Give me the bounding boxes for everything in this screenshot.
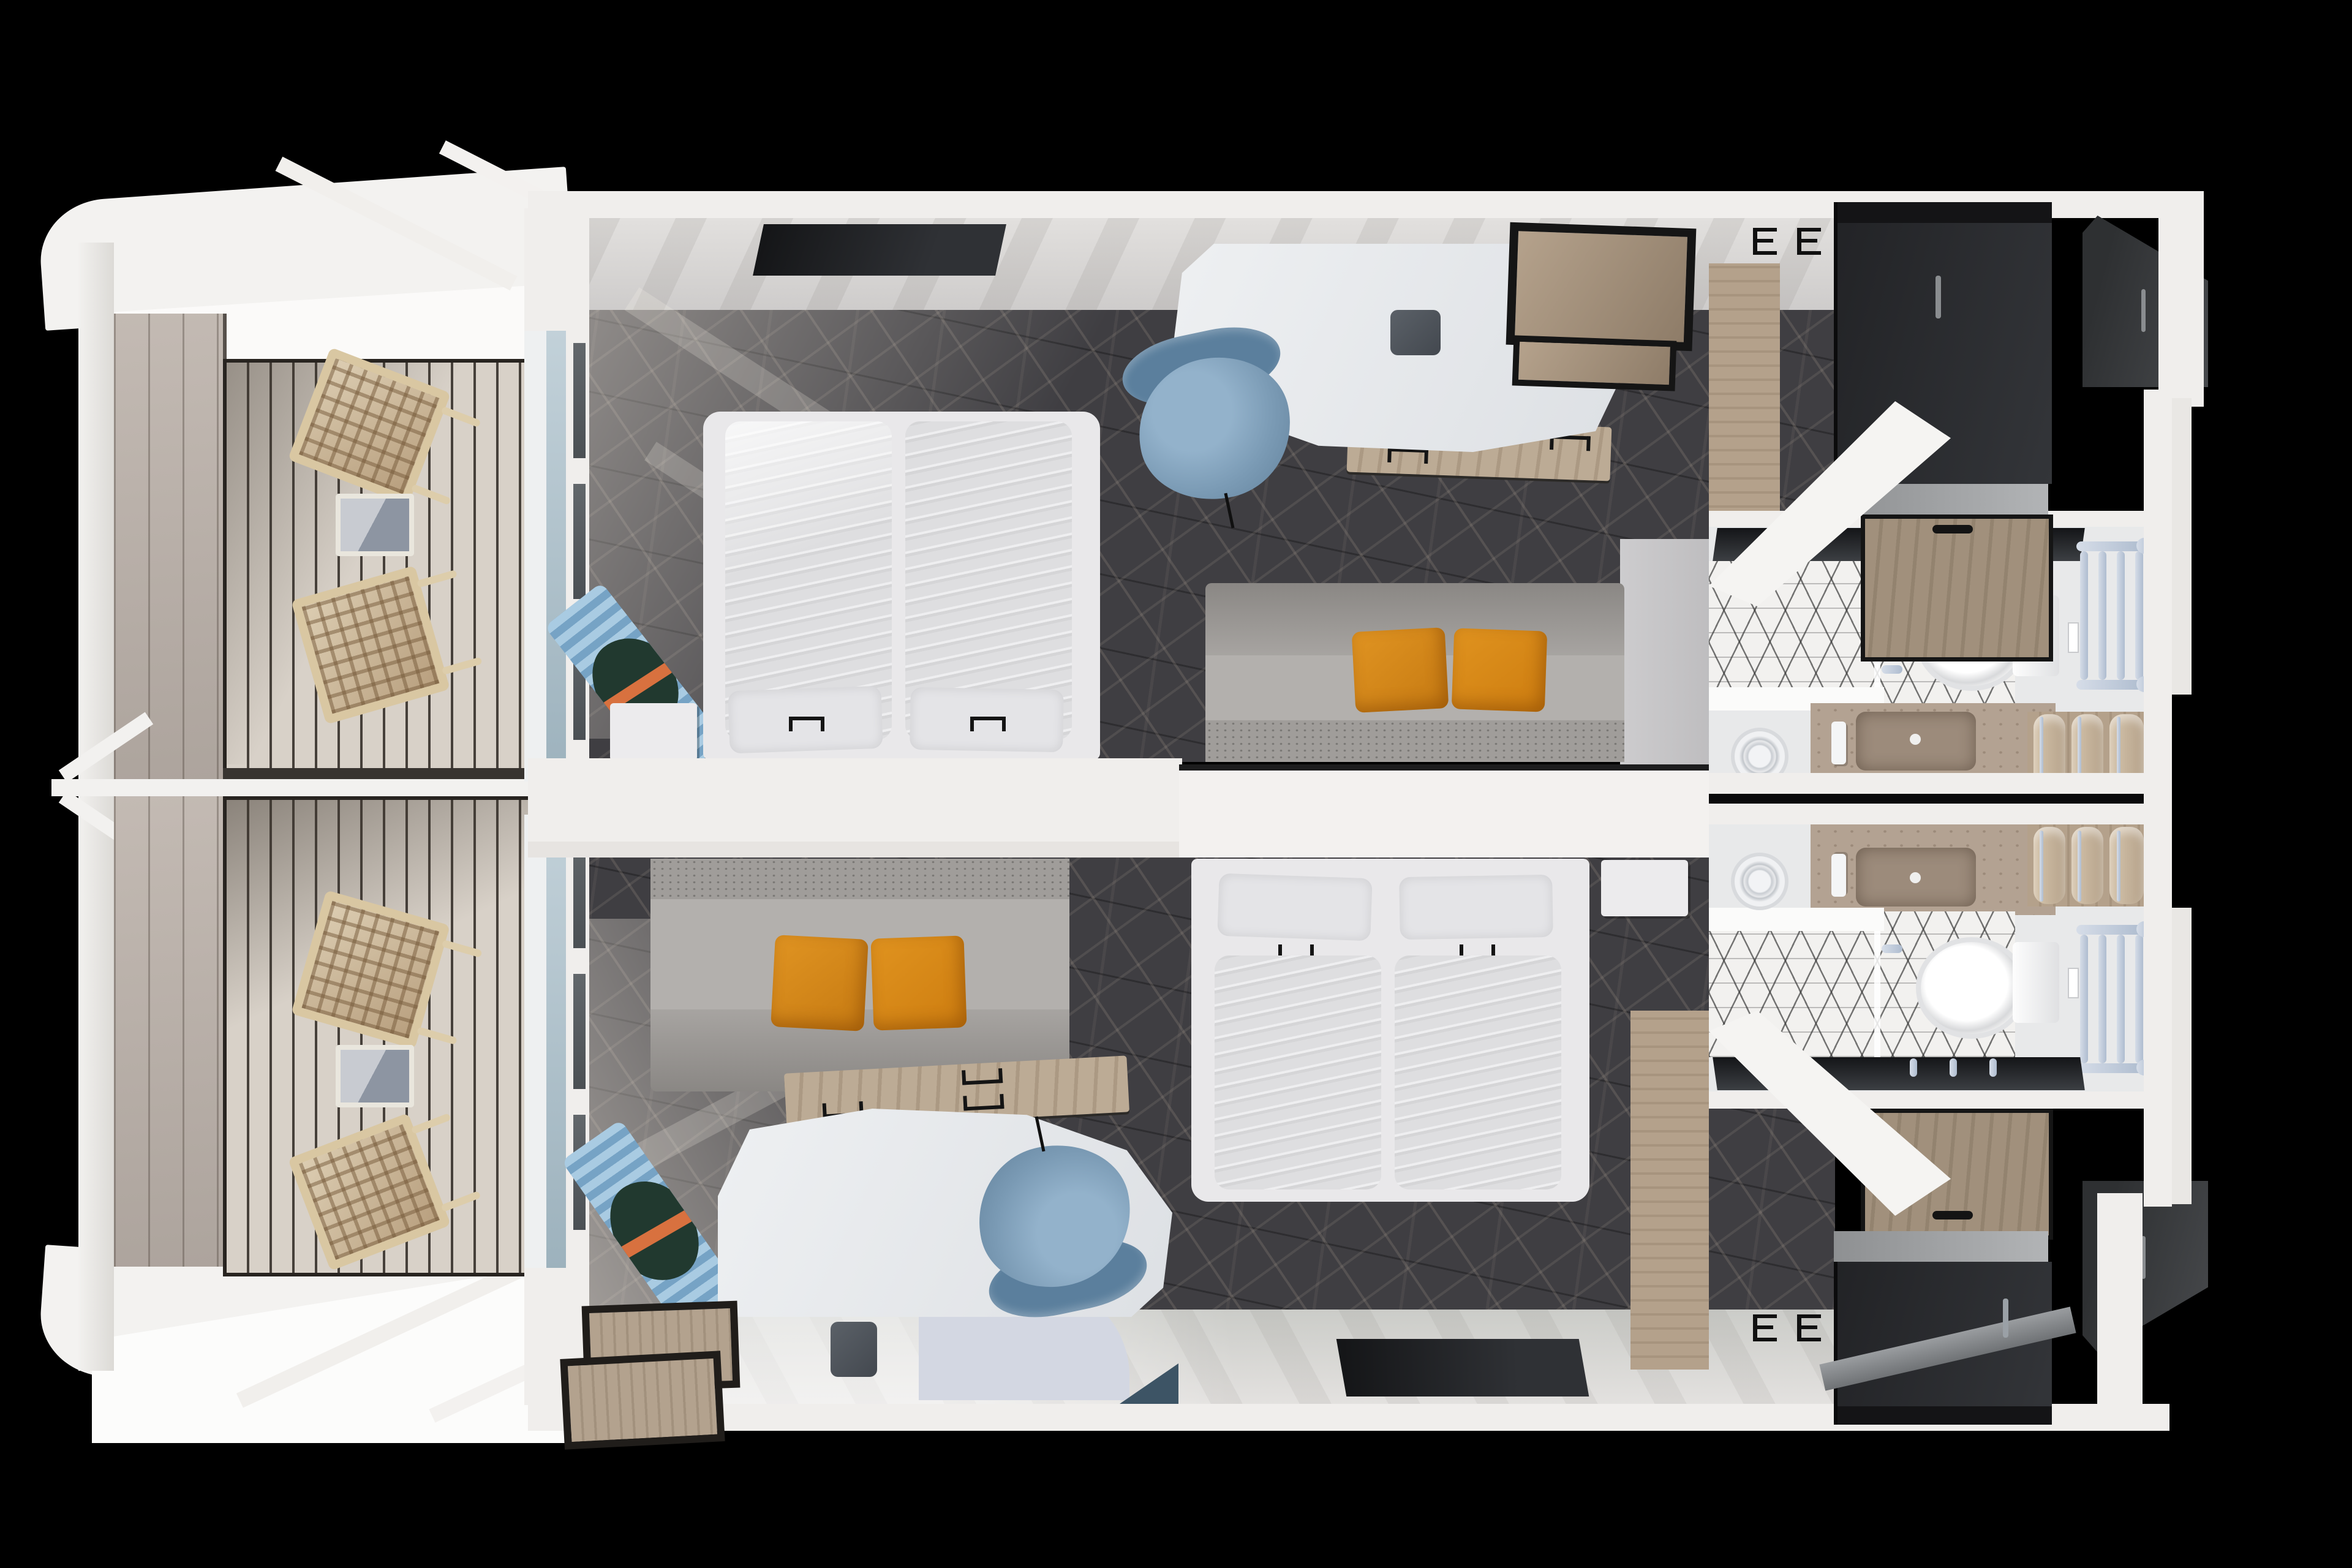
balcony-bulwark-bottom [114,796,227,1267]
bathroom-divider-wall [1709,773,2147,794]
sofa-skirt [1205,720,1624,762]
floor-plan-render [0,0,2352,1568]
phone-on-desk [1390,310,1441,355]
wall-hook-icon [1753,228,1784,255]
bed-top-cabin [703,412,1100,759]
wardrobe-top-edge [1838,202,2052,223]
towel-bar [2117,831,2120,902]
side-wall-gray-top [1620,539,1711,764]
right-corner-wall-top [2158,191,2204,407]
wall-hook-icon [1797,1314,1828,1341]
sofa-top-cabin [1205,583,1624,762]
mixer-handle [1950,1058,1957,1077]
window-glass [573,343,586,458]
sofa-bottom-cabin [650,859,1069,1091]
bed-pillow [1399,875,1553,940]
wardrobe-handle [1936,276,1941,318]
towel-ladder [2076,925,2147,1077]
tv-top-cabin [753,224,1006,276]
drawer-handle [1387,448,1428,464]
bed-handle [970,717,1006,731]
towel-bar [2078,831,2081,902]
sink-drain [1910,734,1921,745]
shower-low-wall [1709,908,1884,931]
wall-hook-icon [1797,228,1828,255]
nightstand-top-cabin [610,703,697,761]
ladder-rung [2098,935,2106,1063]
balcony-bulwark-top [114,314,227,780]
balcony-side-table [336,1045,414,1107]
sofa-pillow-orange [870,935,967,1030]
right-wall-bump [2172,398,2192,695]
drawer-handle [1932,525,1973,533]
railing-glass-bottom [546,815,566,1268]
tv-bottom-cabin [1336,1339,1589,1396]
towel-ladder [2076,541,2147,693]
wardrobe-handle [2003,1298,2008,1338]
towel-bar [2040,831,2043,902]
drawer-handle [1932,1211,1973,1219]
ladder-rung [2135,935,2143,1063]
drawer-handle [963,1094,1004,1110]
ladder-rung [2098,551,2106,680]
ladder-rung [2117,551,2125,680]
mattress [1395,956,1561,1189]
bathroom-divider-wall [1709,804,2147,824]
balcony-railing-bottom [524,815,546,1268]
shower-valve [1882,944,1902,953]
divider-wall-ledge [528,842,1182,858]
wardrobe-bottom-edge [1838,1406,2052,1425]
towel [2071,827,2103,904]
window-glass [573,484,586,599]
ladder-rail [2076,925,2144,935]
desk-chair-top-cabin [1121,326,1305,513]
towel [2034,827,2065,904]
mattress [1215,956,1381,1189]
storage-box [560,1351,725,1450]
shower-head [1731,853,1789,910]
ladder-rung [2135,551,2143,680]
sink-faucet [1831,722,1846,764]
sink-drain [1910,872,1921,883]
shower-valve [1882,665,1902,674]
bathroom-divider-gap [1709,794,2147,804]
sofa-pillow-orange [1452,628,1548,712]
divider-wall-left [528,758,1182,842]
desk-chair-bottom-cabin [965,1131,1148,1319]
balcony-side-table [336,494,414,556]
ladder-rail [2076,1063,2144,1073]
window-glass [573,974,586,1089]
railing-glass-top [546,331,566,782]
right-corner-wall-bottom [2097,1193,2143,1431]
right-wall-bump [2172,908,2192,1204]
ladder-rung [2080,551,2088,680]
ladder-rung [2117,935,2125,1063]
closet-drawer-top [1861,514,2053,661]
sofa-skirt [650,859,1069,899]
wardrobe-diagonal-highlight [1819,1306,2076,1390]
small-cube [831,1322,877,1377]
bed-pillow [1217,873,1372,941]
ladder-rung [2080,935,2088,1063]
right-outer-wall [2144,390,2172,1207]
minibar-shelf [1506,222,1697,351]
wall-hook-icon [1753,1314,1784,1341]
balcony-partition-fin [51,779,571,796]
door-handle [2141,289,2146,332]
sink-faucet [1831,854,1846,897]
ladder-rail [2076,541,2144,551]
wardrobe-bottom-cabin [1834,1262,2052,1425]
minibar-tray [1512,335,1677,391]
sofa-pillow-orange [771,935,869,1031]
drawer-handle [962,1068,1003,1085]
toilet-tank [2013,942,2059,1023]
bed-handle [789,717,824,731]
window-junction-top [524,208,593,337]
balcony-railing-top [524,331,546,782]
toilet-bowl [1916,937,2027,1039]
bed-bottom-cabin [1191,859,1589,1202]
ladder-rail [2076,680,2144,690]
sofa-pillow-orange [1352,627,1449,713]
mixer-handle [1989,1058,1997,1077]
nightstand-bottom-cabin [1601,860,1688,916]
corridor-wood-wall-bottom [1630,1011,1709,1370]
mixer-handle [1910,1058,1917,1077]
wardrobe-band [1834,1231,2048,1262]
shower-glass-partition [1874,911,1880,1057]
towel [2109,827,2144,904]
